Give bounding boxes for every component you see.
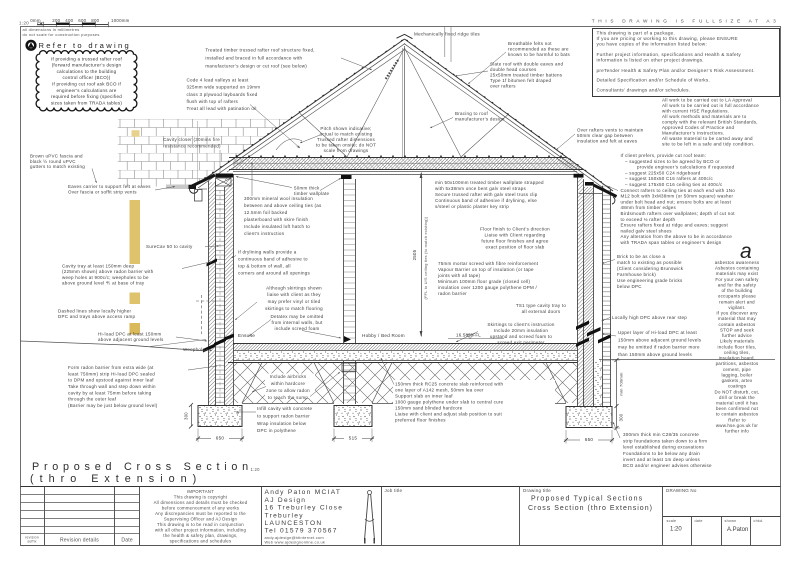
svg-text:Revision details: Revision details xyxy=(60,537,99,543)
svg-text:installed and braced in full a: installed and braced in full accordance … xyxy=(205,56,302,61)
svg-text:top & bottom of wall, all: top & bottom of wall, all xyxy=(238,263,291,268)
svg-text:Refer to: Refer to xyxy=(728,417,746,422)
svg-text:resistance recommended): resistance recommended) xyxy=(163,144,221,149)
svg-text:may prefer vinyl or tiled: may prefer vinyl or tiled xyxy=(268,299,321,304)
svg-text:class 3 plywood layboards fixe: class 3 plywood layboards fixed xyxy=(187,92,258,97)
svg-text:Likely materials: Likely materials xyxy=(720,339,755,344)
svg-text:min 700mm: min 700mm xyxy=(619,372,624,396)
svg-text:site to be left in a safe and: site to be left in a safe and tidy condi… xyxy=(662,142,755,147)
svg-text:with current HSE Regulations.: with current HSE Regulations. xyxy=(662,109,729,114)
svg-text:All work to be carried out to: All work to be carried out to LA Approva… xyxy=(662,98,752,103)
svg-text:16 Treburley Close: 16 Treburley Close xyxy=(265,505,344,512)
svg-text:engineer’s calculations are: engineer’s calculations are xyxy=(56,88,116,93)
svg-text:AJ Design: AJ Design xyxy=(265,497,307,504)
svg-text:Refer to drawing: Refer to drawing xyxy=(39,41,132,50)
svg-text:(Client considering Brunswick: (Client considering Brunswick xyxy=(617,266,684,271)
svg-text:Code 4 lead valleys at least: Code 4 lead valleys at least xyxy=(187,78,250,83)
svg-text:Take through wall and step dow: Take through wall and step down within xyxy=(68,384,156,389)
svg-text:Include 20mm insulation: Include 20mm insulation xyxy=(494,328,549,333)
svg-text:This drawing is copyright: This drawing is copyright xyxy=(174,495,228,500)
svg-text:one layer of A142 mesh, 50mm l: one layer of A142 mesh, 50mm lea over xyxy=(395,388,484,393)
svg-text:Andy Paton MCIAT: Andy Paton MCIAT xyxy=(265,489,342,496)
svg-text:contain asbestos: contain asbestos xyxy=(719,322,757,327)
svg-text:required before fixing (specif: required before fixing (specified xyxy=(51,94,122,99)
svg-text:THIS DRAWING IS FULLSIZE AT A3: THIS DRAWING IS FULLSIZE AT A3 xyxy=(592,19,780,24)
svg-text:(thro Extension): (thro Extension) xyxy=(30,473,202,485)
svg-text:Proposed Cross Section: Proposed Cross Section xyxy=(32,461,253,473)
svg-text:information is listed on other: information is listed on other project d… xyxy=(597,58,704,63)
svg-text:sizes taken from TRADA tables): sizes taken from TRADA tables) xyxy=(51,100,122,105)
svg-text:www.hse.gov.uk for: www.hse.gov.uk for xyxy=(716,423,759,428)
svg-text:Vapour Barrier on top of insul: Vapour Barrier on top of insulation (or … xyxy=(438,267,534,272)
svg-text:48mm from timber edges: 48mm from timber edges xyxy=(621,205,677,210)
svg-text:Treburley: Treburley xyxy=(265,512,304,519)
svg-text:to contain asbestos: to contain asbestos xyxy=(716,412,759,417)
svg-text:upstand and screed foam to: upstand and screed foam to xyxy=(490,334,553,339)
svg-text:Do NOT disturb, cut,: Do NOT disturb, cut, xyxy=(715,389,760,394)
svg-text:If drylining walls provide a: If drylining walls provide a xyxy=(238,249,297,254)
svg-text:Continuous band of adhesive if: Continuous band of adhesive if drylining… xyxy=(435,198,537,203)
svg-text:actual to match existing: actual to match existing xyxy=(319,132,372,137)
svg-text:radon barrier: radon barrier xyxy=(438,291,467,296)
svg-text:gutters to match existing: gutters to match existing xyxy=(30,164,85,169)
svg-text:Cavity tray at least 150mm dee: Cavity tray at least 150mm deep xyxy=(62,263,135,268)
svg-text:Floor finish to Client’s direc: Floor finish to Client’s direction xyxy=(480,227,550,232)
svg-text:– suggest 150x50 C16 rafters: – suggest 150x50 C16 rafters at 400c/c xyxy=(625,176,714,181)
svg-text:with all other project informa: with all other project information, incl… xyxy=(155,528,247,533)
svg-text:– suggest 175x50 C16 ceiling: – suggest 175x50 C16 ceiling ties at 400… xyxy=(625,182,723,187)
svg-text:300: 300 xyxy=(619,413,624,421)
svg-text:Asbestos containing: Asbestos containing xyxy=(715,266,759,271)
svg-text:preferred floor finishes: preferred floor finishes xyxy=(395,418,446,423)
svg-text:Trussed rafter dimensions: Trussed rafter dimensions xyxy=(317,137,376,142)
svg-text:12.5mm foil backed: 12.5mm foil backed xyxy=(244,210,288,215)
svg-text:Bracing to roof: Bracing to roof xyxy=(455,111,489,116)
svg-text:vigilant.: vigilant. xyxy=(728,305,745,310)
svg-text:preTender Health & Safety Plan: preTender Health & Safety Plan and/or De… xyxy=(597,68,755,73)
svg-text:A.Paton: A.Paton xyxy=(727,527,748,533)
svg-text:Over fascia or soffit strip ve: Over fascia or soffit strip vents xyxy=(68,190,137,195)
svg-text:150mm above adjacent ground le: 150mm above adjacent ground levels xyxy=(618,337,702,342)
svg-text:Include airbricks: Include airbricks xyxy=(270,374,307,379)
svg-text:plasterboard with skire finish: plasterboard with skire finish xyxy=(244,217,309,222)
svg-text:do not scale for construction: do not scale for construction purposes xyxy=(23,32,100,37)
svg-text:than 150mm above ground levels: than 150mm above ground levels xyxy=(618,352,693,357)
svg-text:manufacturer’s design: manufacturer’s design xyxy=(455,117,505,122)
svg-text:least 750mm) strip Hi-load DPC: least 750mm) strip Hi-load DPC sealed xyxy=(68,371,155,376)
svg-text:515: 515 xyxy=(349,436,358,441)
svg-text:Foundations to be below any dr: Foundations to be below any drain xyxy=(623,451,700,456)
svg-text:include floor tiles,: include floor tiles, xyxy=(718,344,757,349)
svg-text:Minimum 100mm floor grade (clo: Minimum 100mm floor grade (closed cell) xyxy=(438,279,531,284)
svg-text:This drawing is part of a pack: This drawing is part of a package. xyxy=(597,31,676,36)
svg-text:to be taken onsite; do NOT: to be taken onsite; do NOT xyxy=(316,143,376,148)
svg-text:to exceed ⅓ rafter depth: to exceed ⅓ rafter depth xyxy=(621,217,676,222)
svg-text:DPC and trays above access ram: DPC and trays above access ramp xyxy=(58,314,136,319)
svg-text:Form radon barrier from extra: Form radon barrier from extra wide (at xyxy=(68,365,154,370)
svg-text:scale from drawings: scale from drawings xyxy=(324,148,369,153)
svg-text:(forward manufacturer’s design: (forward manufacturer’s design xyxy=(52,63,122,68)
svg-text:Infill cavity with concrete: Infill cavity with concrete xyxy=(257,406,313,411)
svg-text:occupants please: occupants please xyxy=(718,294,756,299)
svg-text:Slate roof with double eaves a: Slate roof with double eaves and xyxy=(490,62,564,67)
svg-text:Support slab on inner leaf: Support slab on inner leaf xyxy=(395,394,453,399)
svg-text:Liaise with Client regarding: Liaise with Client regarding xyxy=(484,233,545,238)
svg-text:within hardcore: within hardcore xyxy=(271,381,306,386)
svg-text:Approved Codes of Practice and: Approved Codes of Practice and xyxy=(662,125,735,130)
svg-text:partitions, asbestos: partitions, asbestos xyxy=(716,361,759,366)
svg-text:all external doors: all external doors xyxy=(522,309,561,314)
svg-text:Brick to be as close a: Brick to be as close a xyxy=(617,254,666,259)
svg-text:min 50x100mm treated timber wa: min 50x100mm treated timber wallplate st… xyxy=(435,180,544,185)
svg-text:Detatex may be omitted: Detatex may be omitted xyxy=(270,314,323,319)
svg-text:Ensure rafters fixed at ridge: Ensure rafters fixed at ridge and eaves;… xyxy=(621,223,729,228)
svg-text:Type 1f bitumen felt draped: Type 1f bitumen felt draped xyxy=(490,78,552,83)
svg-text:Proposed Typical Sections: Proposed Typical Sections xyxy=(531,496,643,503)
svg-text:Skirtings to client’s instruct: Skirtings to client’s instruction xyxy=(487,322,554,327)
svg-text:specifications and schedules: specifications and schedules xyxy=(170,539,232,544)
svg-text:– suggested sizes to be agre: – suggested sizes to be agreed by BCO or xyxy=(625,159,720,164)
svg-text:650: 650 xyxy=(216,436,225,441)
svg-text:shown: shown xyxy=(725,519,737,523)
svg-text:600: 600 xyxy=(78,18,86,23)
svg-text:chkd.: chkd. xyxy=(754,519,764,523)
svg-text:Upper layer of Hi-load DPC at: Upper layer of Hi-load DPC at least xyxy=(618,330,698,335)
svg-text:ceiling tiles,: ceiling tiles, xyxy=(724,350,750,355)
svg-text:black ½ round uPVC: black ½ round uPVC xyxy=(30,158,76,164)
svg-text:150mm thick RC25 concrete slab: 150mm thick RC25 concrete slab reinforce… xyxy=(395,382,504,387)
svg-text:1000mm: 1000mm xyxy=(111,18,130,23)
svg-text:the health & safety plan, draw: the health & safety plan, drawings, xyxy=(163,533,237,538)
svg-text:Treated timber trussed rafter: Treated timber trussed rafter roof struc… xyxy=(205,48,314,53)
svg-text:of the building: of the building xyxy=(721,288,752,293)
svg-text:to reach the sump: to reach the sump xyxy=(268,395,309,400)
svg-text:insulation board,: insulation board, xyxy=(719,356,755,361)
svg-text:screed exit perimeter: screed exit perimeter xyxy=(497,340,545,345)
svg-text:before commencement of any wor: before commencement of any works xyxy=(162,506,239,511)
svg-text:material that may: material that may xyxy=(718,316,756,321)
svg-text:TS1 type cavity tray to: TS1 type cavity tray to xyxy=(516,303,567,308)
svg-text:– suggest 225x50 C24 ridgebo: – suggest 225x50 C24 ridgeboard xyxy=(625,170,701,175)
svg-text:Secure trussed rafter with gal: Secure trussed rafter with galv steel tr… xyxy=(435,192,538,197)
svg-text:Over rafters vents to maintain: Over rafters vents to maintain xyxy=(577,128,644,133)
svg-text:50mm clear gap between: 50mm clear gap between xyxy=(577,133,633,138)
svg-text:DPC in polythene: DPC in polythene xyxy=(257,428,296,433)
svg-text:joints with all tape): joints with all tape) xyxy=(437,273,481,278)
svg-text:with TRADA span tables or engi: with TRADA span tables or engineer’s des… xyxy=(621,240,722,245)
svg-text:If providing a trussed rafter: If providing a trussed rafter roof xyxy=(51,56,123,61)
svg-text:STOP and seek: STOP and seek xyxy=(720,327,755,332)
svg-text:material until it has: material until it has xyxy=(716,401,758,406)
svg-text:drill or break the: drill or break the xyxy=(719,395,755,400)
svg-text:Further project information, s: Further project information, specificati… xyxy=(597,52,742,57)
svg-text:All work methods and materials: All work methods and materials are to xyxy=(662,114,747,119)
svg-text:Farmhouse brick): Farmhouse brick) xyxy=(617,272,656,277)
svg-text:1:20: 1:20 xyxy=(19,21,29,26)
svg-text:suffix: suffix xyxy=(27,539,36,543)
svg-text:If client prefers, provide cut: If client prefers, provide cut roof team… xyxy=(621,153,707,158)
svg-text:Web www.ajdesignonline.co.uk: Web www.ajdesignonline.co.uk xyxy=(265,539,326,544)
svg-text:Mechanically fixed ridge tiles: Mechanically fixed ridge tiles xyxy=(414,32,480,37)
svg-text:invert and at least 1m deep un: invert and at least 1m deep unless xyxy=(623,457,701,462)
svg-text:200: 200 xyxy=(52,18,60,23)
svg-text:level established during excav: level established during excavations xyxy=(623,445,705,450)
svg-text:For your own safety: For your own safety xyxy=(715,277,759,282)
svg-text:cavity by at least 75mm before: cavity by at least 75mm before taking xyxy=(68,390,152,395)
svg-text:All work to be carried out in: All work to be carried out in full accor… xyxy=(662,103,759,108)
svg-text:Job title: Job title xyxy=(385,488,403,493)
svg-text:may be omitted if radon barrie: may be omitted if radon barrier more xyxy=(618,345,700,350)
svg-text:corners and around all opening: corners and around all openings xyxy=(238,270,311,275)
svg-text:Locally high DPC above rear st: Locally high DPC above rear step xyxy=(612,315,687,320)
svg-text:from internal walls, but: from internal walls, but xyxy=(271,320,323,325)
svg-text:Hi-load DPC at least 150mm: Hi-load DPC at least 150mm xyxy=(98,331,162,336)
svg-text:date: date xyxy=(695,519,703,523)
svg-text:Cavity closer (30mins fire: Cavity closer (30mins fire xyxy=(163,137,220,142)
svg-text:strip foundations taken down t: strip foundations taken down to a firm xyxy=(623,438,707,443)
svg-text:Weephole: Weephole xyxy=(183,347,205,352)
svg-text:future floor finishes and agre: future floor finishes and agree xyxy=(481,239,549,244)
svg-text:and for the safety: and for the safety xyxy=(718,282,757,287)
svg-text:further info: further info xyxy=(725,429,749,434)
svg-text:above adjacent ground levels: above adjacent ground levels xyxy=(98,337,164,342)
svg-text:insulation over 1200 gauge pol: insulation over 1200 gauge polythene DPM… xyxy=(438,285,538,290)
svg-text:300mm thick min C28/35 concret: 300mm thick min C28/35 concrete xyxy=(623,432,699,437)
svg-text:Treat all lead with patination: Treat all lead with patination oil xyxy=(187,106,257,111)
svg-text:Hobby / Bed Room: Hobby / Bed Room xyxy=(362,333,405,338)
svg-text:double head courses: double head courses xyxy=(490,67,537,72)
svg-text:2505: 2505 xyxy=(412,249,417,260)
svg-text:(Barrier may be just below gro: (Barrier may be just below ground level) xyxy=(68,403,158,408)
svg-text:Although skirtings shown: Although skirtings shown xyxy=(266,285,322,290)
svg-text:Supervising Officer and AJ Des: Supervising Officer and AJ Design xyxy=(164,517,238,522)
svg-text:M12 bolt with 3xM38mm (or 50mm: M12 bolt with 3xM38mm (or 50mm square) w… xyxy=(621,194,734,199)
svg-text:650: 650 xyxy=(585,437,594,442)
svg-text:All dimensions and details mus: All dimensions and details must be check… xyxy=(154,500,248,505)
svg-text:Dashed lines show locally high: Dashed lines show locally higher xyxy=(58,308,132,313)
svg-text:known to be harmful to bats: known to be harmful to bats xyxy=(508,52,571,57)
svg-text:client’s instruction: client’s instruction xyxy=(244,231,285,236)
svg-text:IMPORTANT: IMPORTANT xyxy=(187,489,214,494)
svg-text:Drawing title: Drawing title xyxy=(523,488,551,493)
svg-text:All waste material to be carte: All waste material to be carted away and xyxy=(662,136,753,141)
svg-text:0mm: 0mm xyxy=(30,18,41,23)
svg-text:insulation and felt at eaves: insulation and felt at eaves xyxy=(577,139,638,144)
svg-text:control officer (BCO)): control officer (BCO)) xyxy=(63,75,111,80)
svg-text:If providing cut roof ask BCO: If providing cut roof ask BCO if xyxy=(52,82,122,87)
svg-text:further advice: further advice xyxy=(722,333,752,338)
svg-text:Any discrepancies must be repo: Any discrepancies must be reported to th… xyxy=(155,511,246,516)
svg-text:to support radon barrier: to support radon barrier xyxy=(257,414,310,419)
svg-text:nailed galv steel shoes: nailed galv steel shoes xyxy=(621,228,673,233)
svg-text:DRAWING No: DRAWING No xyxy=(666,488,697,493)
svg-text:If you are pricing or working: If you are pricing or working to this dr… xyxy=(597,36,738,41)
svg-text:between and above ceiling ties: between and above ceiling ties (as xyxy=(244,203,322,208)
svg-text:over rafters: over rafters xyxy=(490,84,516,89)
svg-text:to DPM and upstood against inn: to DPM and upstood against inner leaf xyxy=(68,378,154,383)
svg-text:300: 300 xyxy=(184,412,189,420)
svg-text:25x50mm treated timber battens: 25x50mm treated timber battens xyxy=(490,73,563,78)
svg-text:(225mm shown) above radon barr: (225mm shown) above radon barrier with xyxy=(62,269,154,274)
svg-text:under bolt head and nut; ensur: under bolt head and nut; ensure bolts ar… xyxy=(621,199,732,204)
svg-text:50mm thick: 50mm thick xyxy=(294,185,320,190)
svg-text:flush with top of rafters: flush with top of rafters xyxy=(187,99,239,104)
svg-text:exact position of floor slab: exact position of floor slab xyxy=(485,245,544,250)
svg-text:comply with the relevant Briti: comply with the relevant British Standar… xyxy=(662,120,758,125)
svg-text:include screed foam: include screed foam xyxy=(274,326,319,331)
svg-text:below DPC: below DPC xyxy=(617,284,642,289)
svg-text:Tel 01579 370567: Tel 01579 370567 xyxy=(265,528,338,535)
svg-text:weep holes at 900c/c; weephole: weep holes at 900c/c; weepholes to be xyxy=(62,275,149,280)
svg-text:recommended as these are: recommended as these are xyxy=(508,47,569,52)
svg-text:provide engineer’s calculation: provide engineer’s calculations if reque… xyxy=(637,165,735,170)
svg-text:Wrap insulation below: Wrap insulation below xyxy=(257,421,307,426)
svg-text:scale: scale xyxy=(667,519,677,523)
svg-text:Liaise with client and adjust: Liaise with client and adjust slab posit… xyxy=(395,412,503,417)
svg-text:remain alert and: remain alert and xyxy=(719,299,755,304)
svg-text:(FFL to U/S ceiling ties (to m: (FFL to U/S ceiling ties (to match exist… xyxy=(424,216,428,299)
svg-text:75mm mortar screed with fibre: 75mm mortar screed with fibre reinforcem… xyxy=(438,261,539,266)
svg-text:Include insulated loft hatch t: Include insulated loft hatch to xyxy=(244,224,310,229)
svg-text:BCO and/or engineer advises ot: BCO and/or engineer advises otherwise xyxy=(623,463,712,468)
svg-text:Connect rafters to ceiling tie: Connect rafters to ceiling ties at each … xyxy=(621,188,736,193)
svg-text:1000 gauge polythene under sla: 1000 gauge polythene under slab to centr… xyxy=(395,400,504,405)
svg-text:Pitch shown indicative;: Pitch shown indicative; xyxy=(320,126,371,131)
svg-text:325mm wide supported on 19mm: 325mm wide supported on 19mm xyxy=(187,85,261,90)
svg-text:materials may exist: materials may exist xyxy=(716,271,759,276)
svg-text:zone to allow radon: zone to allow radon xyxy=(266,388,310,393)
svg-text:been confirmed not: been confirmed not xyxy=(716,406,759,411)
svg-text:1:20: 1:20 xyxy=(670,526,682,532)
svg-text:Use engineering grade bricks: Use engineering grade bricks xyxy=(617,278,683,283)
svg-text:Cross Section (thro Extension): Cross Section (thro Extension) xyxy=(528,505,653,512)
svg-text:asbestos awareness: asbestos awareness xyxy=(715,260,760,265)
svg-text:above ground level ⅘ at base o: above ground level ⅘ at base of tray xyxy=(62,281,145,286)
svg-text:you have copies of the informa: you have copies of the information liste… xyxy=(597,42,708,47)
svg-text:1:20: 1:20 xyxy=(251,467,261,472)
svg-text:Any alteration from the above: Any alteration from the above to be in a… xyxy=(621,234,733,239)
svg-text:150mm sand blinded hardcore: 150mm sand blinded hardcore xyxy=(395,406,463,411)
svg-text:Breathable felts not: Breathable felts not xyxy=(508,41,552,46)
svg-text:through the outer leaf: through the outer leaf xyxy=(68,397,117,402)
svg-text:cement, pipe: cement, pipe xyxy=(723,367,751,372)
svg-text:calculations to the building: calculations to the building xyxy=(57,69,117,74)
svg-text:with 5x38mm once bent galv ste: with 5x38mm once bent galv steel straps xyxy=(435,186,527,191)
svg-text:LAUNCESTON: LAUNCESTON xyxy=(265,520,323,527)
svg-text:Manufacturer’s Instructions.: Manufacturer’s Instructions. xyxy=(662,131,724,136)
svg-text:800: 800 xyxy=(91,18,99,23)
svg-text:gaskets, artex: gaskets, artex xyxy=(722,378,753,383)
svg-text:skirtings to match flooring: skirtings to match flooring xyxy=(265,306,323,311)
svg-text:coatings: coatings xyxy=(728,384,747,389)
svg-text:SureCav 50 to cavity: SureCav 50 to cavity xyxy=(146,244,193,249)
svg-text:lagging, boiler: lagging, boiler xyxy=(721,372,752,377)
svg-text:Brown uPVC fascia and: Brown uPVC fascia and xyxy=(30,153,83,158)
svg-text:manufacturer’s design or cut r: manufacturer’s design or cut roof (see b… xyxy=(205,64,307,69)
svg-text:300mm mineral wool insulation: 300mm mineral wool insulation xyxy=(244,196,313,201)
svg-text:Eaves carrier to support felt: Eaves carrier to support felt at eaves xyxy=(68,184,151,189)
svg-text:Birdsmouth rafters over wallpl: Birdsmouth rafters over wallplates; dept… xyxy=(621,211,736,216)
svg-text:s/steel or plastic plaster key: s/steel or plastic plaster key strip xyxy=(435,204,509,209)
svg-text:Date: Date xyxy=(121,537,133,543)
svg-text:continuous band of adhesive to: continuous band of adhesive to xyxy=(238,256,308,261)
svg-text:If you discover any: If you discover any xyxy=(716,311,758,316)
svg-text:Detailed Specification and/or: Detailed Specification and/or Schedule o… xyxy=(597,78,711,83)
svg-text:match to existing as possible: match to existing as possible xyxy=(617,260,682,265)
svg-text:400: 400 xyxy=(65,18,73,23)
svg-text:liaise with client as they: liaise with client as they xyxy=(267,292,321,297)
svg-text:Consultants’ drawings and/or s: Consultants’ drawings and/or schedules. xyxy=(597,87,691,92)
svg-text:This drawing is to be read in: This drawing is to be read in conjunctio… xyxy=(157,522,244,527)
